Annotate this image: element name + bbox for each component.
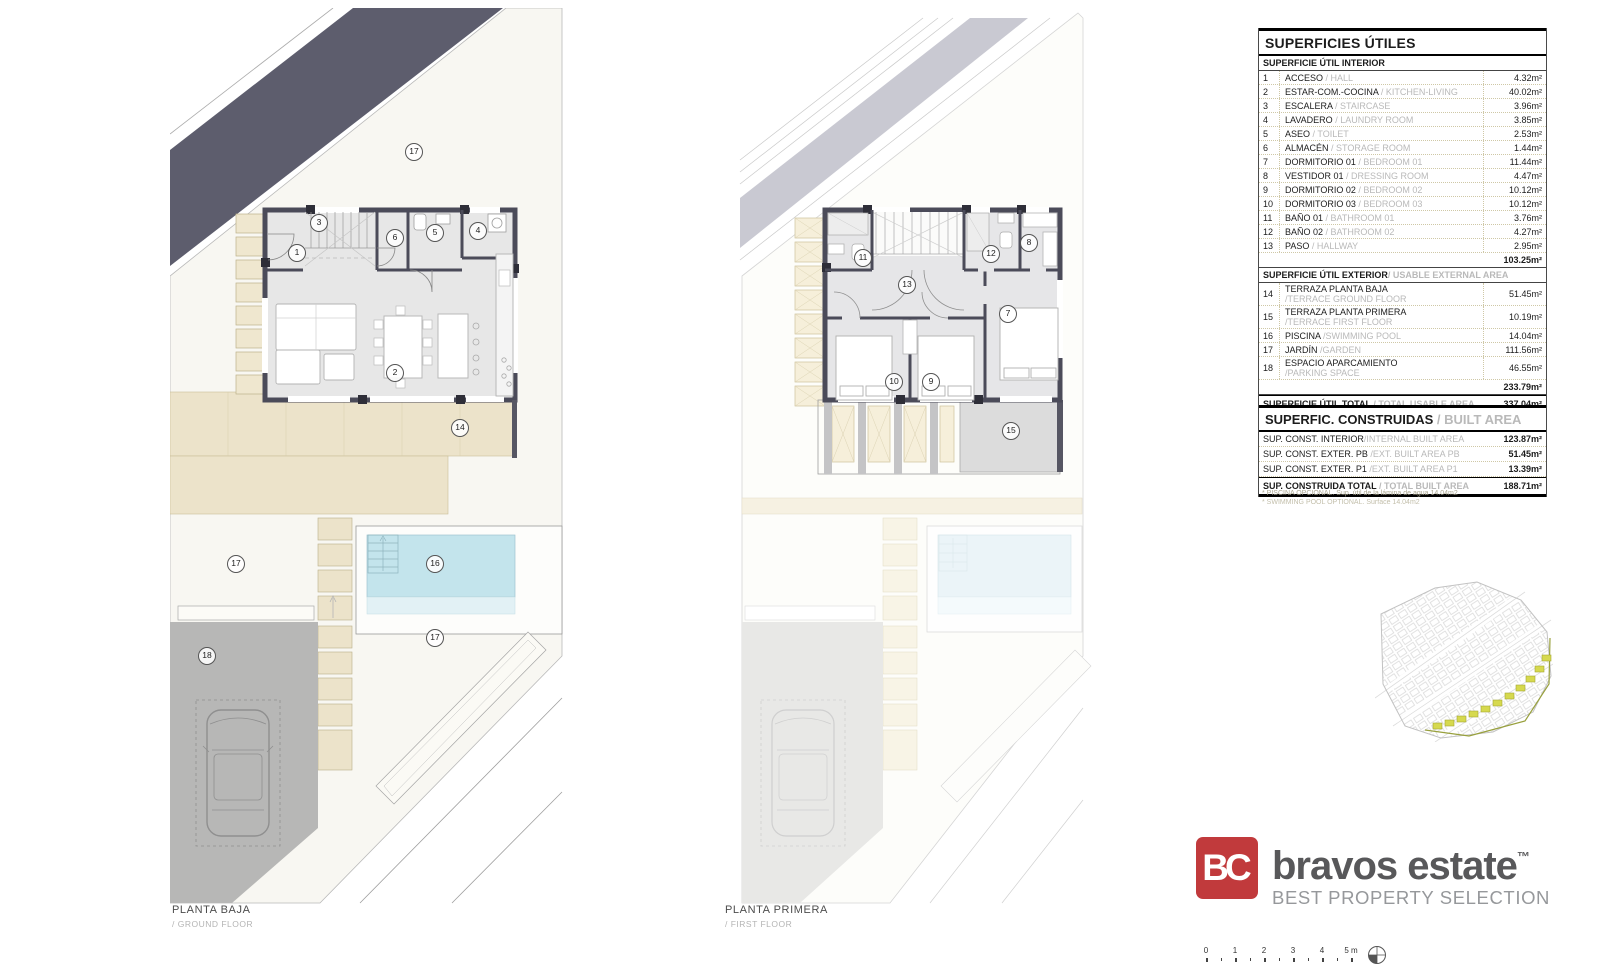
- scale-tick: [1206, 958, 1208, 962]
- exterior-section-header: SUPERFICIE ÚTIL EXTERIOR/ USABLE EXTERNA…: [1259, 268, 1546, 283]
- room-marker-9: 9: [922, 373, 940, 391]
- room-marker-10: 10: [885, 373, 903, 391]
- brand-name: bravos estate™: [1272, 837, 1550, 886]
- interior-area-row: 4LAVADERO / LAUNDRY ROOM3.85m²: [1259, 113, 1546, 127]
- ground-floor-title: PLANTA BAJA: [172, 904, 253, 916]
- interior-section-header: SUPERFICIE ÚTIL INTERIOR: [1259, 56, 1546, 71]
- exterior-area-row: 16PISCINA /SWIMMING POOL14.04m²: [1259, 329, 1546, 343]
- built-rows: SUP. CONST. INTERIOR/INTERNAL BUILT AREA…: [1259, 432, 1546, 477]
- room-marker-16: 16: [426, 555, 444, 573]
- first-floor-subtitle: / FIRST FLOOR: [725, 919, 828, 929]
- exterior-subtotal: 233.79m²: [1259, 380, 1546, 395]
- interior-area-row: 11BAÑO 01 / BATHROOM 013.76m²: [1259, 211, 1546, 225]
- room-marker-14: 14: [451, 419, 469, 437]
- room-marker-12: 12: [982, 245, 1000, 263]
- room-marker-17: 17: [426, 629, 444, 647]
- interior-area-row: 10DORMITORIO 03 / BEDROOM 0310.12m²: [1259, 197, 1546, 211]
- ground-floor-caption: PLANTA BAJA / GROUND FLOOR: [172, 904, 253, 929]
- pool-footnotes: * PISCINA OPCIONAL. Sup. útil de la lámi…: [1262, 489, 1458, 507]
- scale-tick: [1351, 958, 1353, 962]
- built-areas-table: SUPERFIC. CONSTRUIDAS / BUILT AREA SUP. …: [1258, 405, 1547, 497]
- footnote-line: * SWIMMING POOL OPTIONAL. Surface 14.04m…: [1262, 498, 1458, 507]
- interior-area-row: 6ALMACÉN / STORAGE ROOM1.44m²: [1259, 141, 1546, 155]
- built-areas-title: SUPERFIC. CONSTRUIDAS / BUILT AREA: [1259, 405, 1546, 432]
- scale-tick: [1250, 958, 1252, 961]
- scale-tick: [1322, 958, 1324, 962]
- footnote-line: * PISCINA OPCIONAL. Sup. útil de la lámi…: [1262, 489, 1458, 498]
- built-area-row: SUP. CONST. INTERIOR/INTERNAL BUILT AREA…: [1259, 432, 1546, 447]
- interior-subtotal: 103.25m²: [1259, 253, 1546, 268]
- exterior-area-row: 18ESPACIO APARCAMIENTO/PARKING SPACE46.5…: [1259, 357, 1546, 380]
- room-marker-6: 6: [386, 229, 404, 247]
- built-area-row: SUP. CONST. EXTER. PB /EXT. BUILT AREA P…: [1259, 447, 1546, 462]
- room-marker-15: 15: [1002, 422, 1020, 440]
- scale-label: 0: [1204, 946, 1208, 955]
- usable-areas-table: SUPERFICIES ÚTILES SUPERFICIE ÚTIL INTER…: [1258, 28, 1547, 415]
- room-marker-17: 17: [405, 143, 423, 161]
- scale-label: 4: [1320, 946, 1324, 955]
- plan-sheet: 171365421417161718: [0, 0, 1600, 973]
- first-floor-plan: 1113128710915: [720, 8, 1115, 905]
- interior-area-row: 3ESCALERA / STAIRCASE3.96m²: [1259, 99, 1546, 113]
- ground-floor-subtitle: / GROUND FLOOR: [172, 919, 253, 929]
- built-total-value: 188.71m²: [1503, 481, 1542, 491]
- exterior-rows: 14TERRAZA PLANTA BAJA/TERRACE GROUND FLO…: [1259, 283, 1546, 380]
- room-marker-7: 7: [999, 305, 1017, 323]
- room-marker-17: 17: [227, 555, 245, 573]
- scale-label: 5 m: [1344, 946, 1357, 955]
- room-marker-13: 13: [898, 276, 916, 294]
- interior-area-row: 1ACCESO / HALL4.32m²: [1259, 71, 1546, 85]
- ground-floor-markers: 171365421417161718: [170, 8, 565, 905]
- room-marker-3: 3: [310, 214, 328, 232]
- first-floor-markers: 1113128710915: [720, 8, 1115, 905]
- room-marker-11: 11: [854, 249, 872, 267]
- interior-rows: 1ACCESO / HALL4.32m²2ESTAR-COM.-COCINA /…: [1259, 71, 1546, 253]
- first-floor-caption: PLANTA PRIMERA / FIRST FLOOR: [725, 904, 828, 929]
- room-marker-18: 18: [198, 647, 216, 665]
- brand-logo: BC bravos estate™ BEST PROPERTY SELECTIO…: [1196, 837, 1550, 909]
- brand-tagline: BEST PROPERTY SELECTION: [1272, 887, 1550, 909]
- scale-tick: [1293, 958, 1295, 962]
- room-marker-2: 2: [386, 364, 404, 382]
- north-compass-icon: [1366, 944, 1388, 971]
- interior-area-row: 7DORMITORIO 01 / BEDROOM 0111.44m²: [1259, 155, 1546, 169]
- scale-tick: [1337, 958, 1339, 961]
- scale-tick: [1308, 958, 1310, 961]
- interior-area-row: 2ESTAR-COM.-COCINA / KITCHEN-LIVING40.02…: [1259, 85, 1546, 99]
- scale-label: 2: [1262, 946, 1266, 955]
- scale-label: 1: [1233, 946, 1237, 955]
- interior-area-row: 8VESTIDOR 01 / DRESSING ROOM4.47m²: [1259, 169, 1546, 183]
- scale-label: 3: [1291, 946, 1295, 955]
- interior-area-row: 12BAÑO 02 / BATHROOM 024.27m²: [1259, 225, 1546, 239]
- exterior-area-row: 17JARDÍN /GARDEN111.56m²: [1259, 343, 1546, 357]
- exterior-area-row: 15TERRAZA PLANTA PRIMERA/TERRACE FIRST F…: [1259, 306, 1546, 329]
- scale-bar: 012345 m: [1202, 946, 1372, 966]
- room-marker-4: 4: [469, 222, 487, 240]
- first-floor-title: PLANTA PRIMERA: [725, 904, 828, 916]
- site-location-map: [1375, 580, 1553, 747]
- usable-areas-title: SUPERFICIES ÚTILES: [1259, 28, 1546, 56]
- scale-tick: [1235, 958, 1237, 962]
- room-marker-8: 8: [1020, 234, 1038, 252]
- ground-floor-plan: 171365421417161718: [170, 8, 565, 905]
- interior-area-row: 13PASO / HALLWAY2.95m²: [1259, 239, 1546, 253]
- scale-tick: [1221, 958, 1223, 961]
- room-marker-1: 1: [288, 244, 306, 262]
- bc-logo-icon: BC: [1196, 837, 1258, 899]
- interior-area-row: 5ASEO / TOILET2.53m²: [1259, 127, 1546, 141]
- scale-tick: [1264, 958, 1266, 962]
- built-area-row: SUP. CONST. EXTER. P1 /EXT. BUILT AREA P…: [1259, 462, 1546, 477]
- room-marker-5: 5: [426, 224, 444, 242]
- trademark-symbol: ™: [1517, 849, 1530, 864]
- interior-area-row: 9DORMITORIO 02 / BEDROOM 0210.12m²: [1259, 183, 1546, 197]
- exterior-area-row: 14TERRAZA PLANTA BAJA/TERRACE GROUND FLO…: [1259, 283, 1546, 306]
- scale-tick: [1279, 958, 1281, 961]
